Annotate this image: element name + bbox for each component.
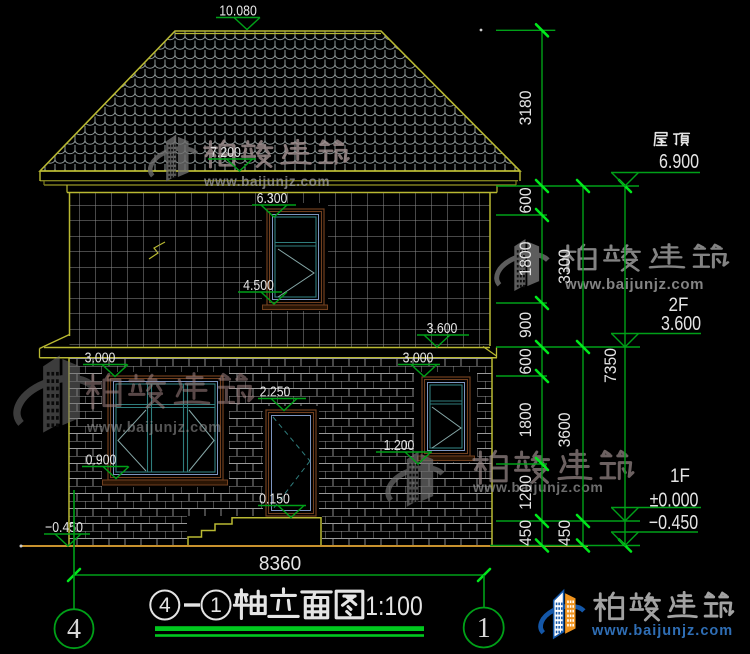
svg-text:1: 1 — [477, 613, 491, 644]
svg-text:7.200: 7.200 — [210, 144, 241, 160]
svg-text:1800: 1800 — [517, 403, 535, 438]
svg-text:1F: 1F — [670, 465, 690, 486]
svg-text:4.500: 4.500 — [243, 277, 274, 293]
svg-text:1: 1 — [210, 594, 222, 617]
svg-text:www.baijunjz.com: www.baijunjz.com — [203, 174, 330, 189]
svg-text:1200: 1200 — [517, 475, 535, 510]
svg-text:0.900: 0.900 — [86, 451, 117, 467]
svg-text:3.000: 3.000 — [403, 349, 434, 365]
svg-text:7350: 7350 — [602, 348, 620, 383]
svg-text:±0.000: ±0.000 — [650, 489, 699, 511]
svg-text:0.150: 0.150 — [259, 490, 290, 506]
svg-text:−0.450: −0.450 — [649, 511, 698, 533]
svg-text:www.baijunjz.com: www.baijunjz.com — [86, 420, 222, 436]
svg-text:6.900: 6.900 — [659, 150, 699, 172]
svg-text:−0.450: −0.450 — [45, 519, 83, 535]
svg-text:450: 450 — [517, 520, 535, 546]
svg-text:600: 600 — [517, 348, 535, 374]
svg-text:1.200: 1.200 — [384, 437, 415, 453]
svg-text:8360: 8360 — [259, 553, 301, 576]
svg-text:2.250: 2.250 — [260, 383, 291, 399]
svg-text:3180: 3180 — [517, 91, 535, 126]
svg-text:4: 4 — [67, 614, 81, 645]
svg-text:3600: 3600 — [556, 413, 574, 448]
svg-text:www.baijunjz.com: www.baijunjz.com — [564, 276, 704, 293]
svg-text:6.300: 6.300 — [257, 190, 288, 206]
svg-text:3.000: 3.000 — [85, 349, 116, 365]
svg-text:3.600: 3.600 — [661, 312, 701, 334]
svg-text:1:100: 1:100 — [365, 591, 422, 621]
svg-text:www.baijunjz.com: www.baijunjz.com — [591, 623, 733, 639]
svg-text:4: 4 — [159, 594, 171, 617]
svg-text:450: 450 — [556, 520, 574, 546]
svg-text:3.600: 3.600 — [427, 320, 458, 336]
svg-text:900: 900 — [517, 312, 535, 338]
svg-text:3300: 3300 — [556, 249, 574, 284]
svg-text:1800: 1800 — [517, 242, 535, 277]
svg-text:10.080: 10.080 — [219, 2, 257, 18]
svg-text:600: 600 — [517, 187, 535, 213]
svg-text:www.baijunjz.com: www.baijunjz.com — [472, 479, 603, 495]
